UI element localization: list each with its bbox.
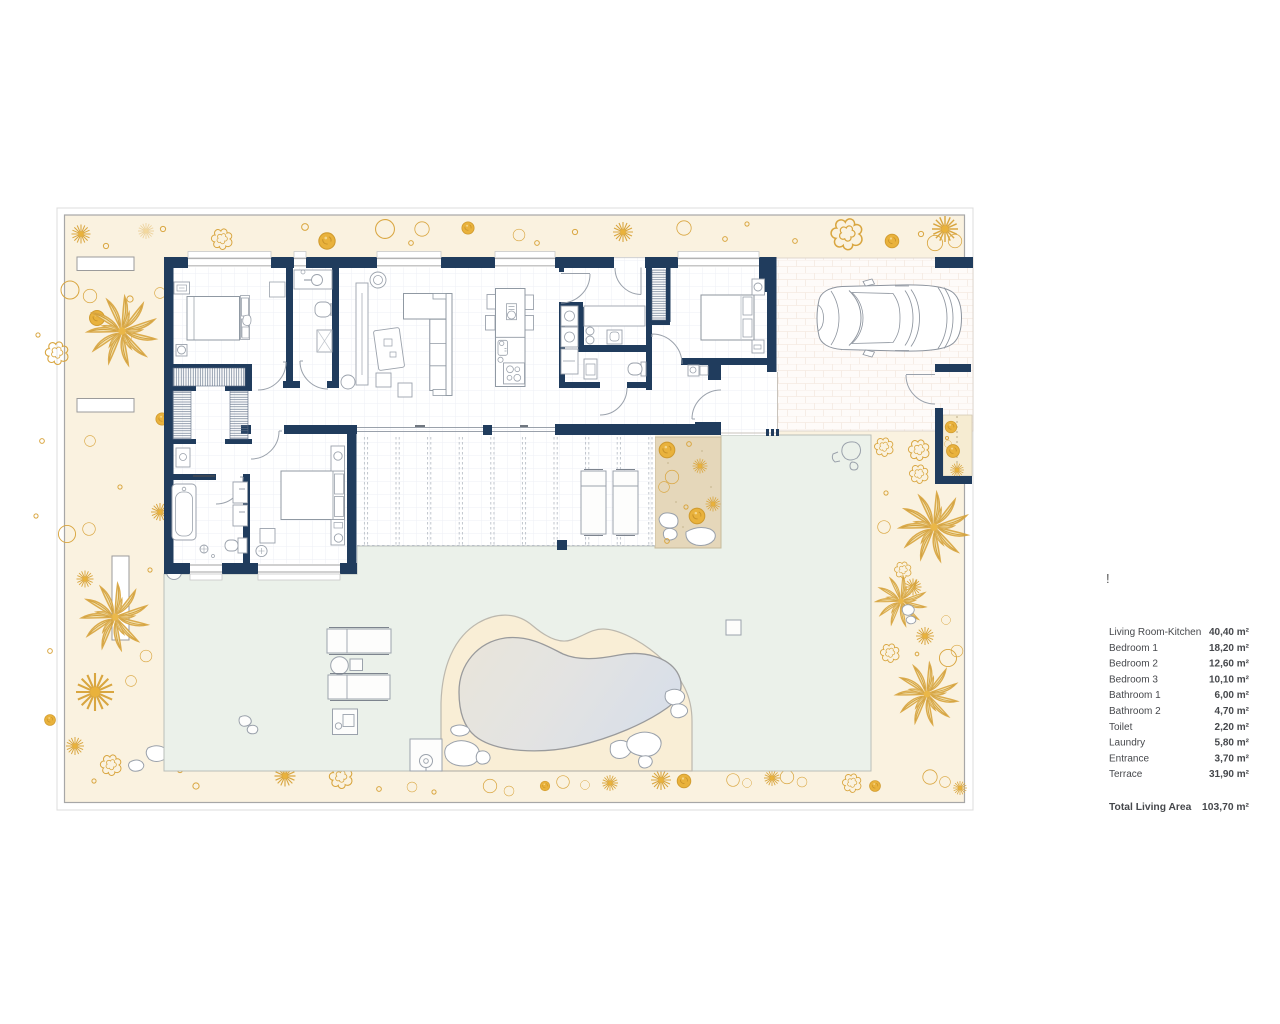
svg-text:10,10 m²: 10,10 m² xyxy=(1209,674,1250,685)
svg-text:!: ! xyxy=(1106,571,1110,586)
svg-text:31,90 m²: 31,90 m² xyxy=(1209,769,1250,780)
svg-text:40,40 m²: 40,40 m² xyxy=(1209,627,1250,638)
svg-text:103,70 m²: 103,70 m² xyxy=(1202,802,1250,813)
svg-text:Entrance: Entrance xyxy=(1109,753,1149,764)
svg-text:Bathroom 1: Bathroom 1 xyxy=(1109,690,1161,701)
svg-text:Total Living Area: Total Living Area xyxy=(1109,802,1192,813)
svg-text:2,20 m²: 2,20 m² xyxy=(1215,722,1250,733)
svg-text:Bedroom 2: Bedroom 2 xyxy=(1109,659,1158,670)
svg-text:12,60 m²: 12,60 m² xyxy=(1209,659,1250,670)
svg-text:Terrace: Terrace xyxy=(1109,769,1143,780)
svg-text:18,20 m²: 18,20 m² xyxy=(1209,643,1250,654)
svg-text:5,80 m²: 5,80 m² xyxy=(1215,738,1250,749)
svg-text:Living Room-Kitchen: Living Room-Kitchen xyxy=(1109,627,1201,638)
svg-text:3,70 m²: 3,70 m² xyxy=(1215,753,1250,764)
svg-text:6,00 m²: 6,00 m² xyxy=(1215,690,1250,701)
svg-text:Bedroom 3: Bedroom 3 xyxy=(1109,674,1158,685)
svg-text:Toilet: Toilet xyxy=(1109,722,1133,733)
svg-text:Bathroom 2: Bathroom 2 xyxy=(1109,706,1161,717)
svg-text:Laundry: Laundry xyxy=(1109,738,1145,749)
svg-text:Bedroom 1: Bedroom 1 xyxy=(1109,643,1158,654)
svg-text:4,70 m²: 4,70 m² xyxy=(1215,706,1250,717)
